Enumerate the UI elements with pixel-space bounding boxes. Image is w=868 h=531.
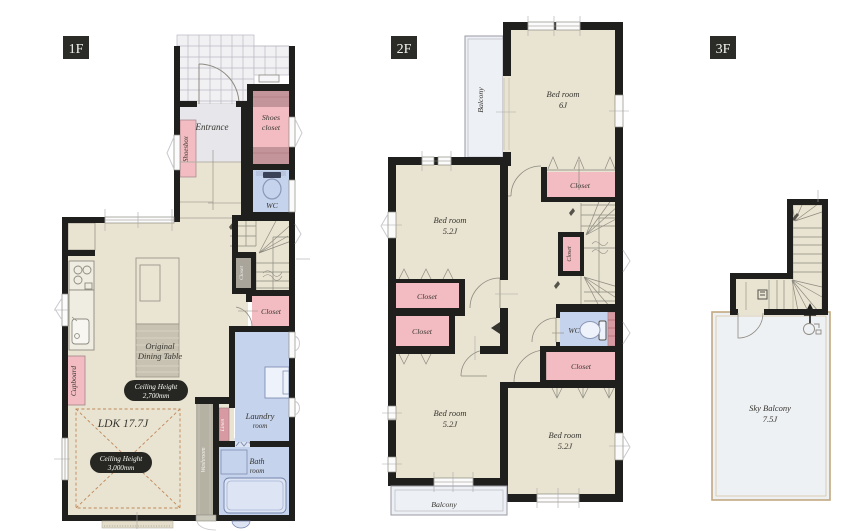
- svg-text:Closet: Closet: [570, 181, 591, 190]
- svg-text:2F: 2F: [397, 42, 412, 57]
- svg-text:Bed room: Bed room: [434, 408, 467, 418]
- svg-text:Ceiling Height: Ceiling Height: [135, 383, 179, 391]
- svg-text:Closet: Closet: [412, 327, 433, 336]
- svg-text:Bed room: Bed room: [549, 430, 582, 440]
- svg-text:room: room: [253, 422, 268, 430]
- svg-text:Sky Balcony: Sky Balcony: [749, 403, 791, 413]
- svg-text:2,700mm: 2,700mm: [143, 392, 170, 400]
- svg-text:Ceiling Height: Ceiling Height: [100, 455, 144, 463]
- svg-text:WC: WC: [568, 326, 580, 335]
- svg-text:Balcony: Balcony: [431, 500, 457, 509]
- svg-text:Dining Table: Dining Table: [137, 351, 183, 361]
- svg-text:Washroom: Washroom: [201, 447, 207, 473]
- svg-text:Closet: Closet: [239, 266, 245, 281]
- svg-text:room: room: [250, 467, 265, 475]
- svg-text:Bath: Bath: [249, 457, 264, 466]
- svg-text:Balcony: Balcony: [476, 87, 485, 113]
- svg-text:Closet: Closet: [567, 246, 573, 262]
- svg-text:WC: WC: [266, 201, 278, 210]
- svg-text:Entrance: Entrance: [195, 122, 229, 132]
- svg-text:Shoes: Shoes: [262, 113, 280, 122]
- svg-text:Closet: Closet: [417, 292, 438, 301]
- svg-text:closet: closet: [262, 123, 281, 132]
- svg-text:3,000mm: 3,000mm: [107, 464, 135, 472]
- svg-text:Shoesbox: Shoesbox: [183, 136, 190, 162]
- svg-text:LDK 17.7J: LDK 17.7J: [97, 418, 149, 430]
- svg-text:Closet: Closet: [261, 307, 282, 316]
- svg-text:5.2J: 5.2J: [443, 419, 459, 429]
- svg-text:Linen: Linen: [220, 418, 226, 432]
- svg-text:5.2J: 5.2J: [443, 226, 459, 236]
- svg-text:Laundry: Laundry: [245, 411, 275, 421]
- svg-text:Bed room: Bed room: [434, 215, 467, 225]
- svg-text:Bed room: Bed room: [547, 89, 580, 99]
- svg-text:Cupboard: Cupboard: [69, 366, 78, 396]
- svg-text:7.5J: 7.5J: [763, 414, 779, 424]
- svg-text:3F: 3F: [716, 42, 731, 57]
- svg-text:Original: Original: [145, 341, 175, 351]
- svg-text:Closet: Closet: [571, 362, 592, 371]
- svg-text:5.2J: 5.2J: [558, 441, 574, 451]
- svg-text:1F: 1F: [69, 42, 84, 57]
- svg-text:6J: 6J: [559, 100, 568, 110]
